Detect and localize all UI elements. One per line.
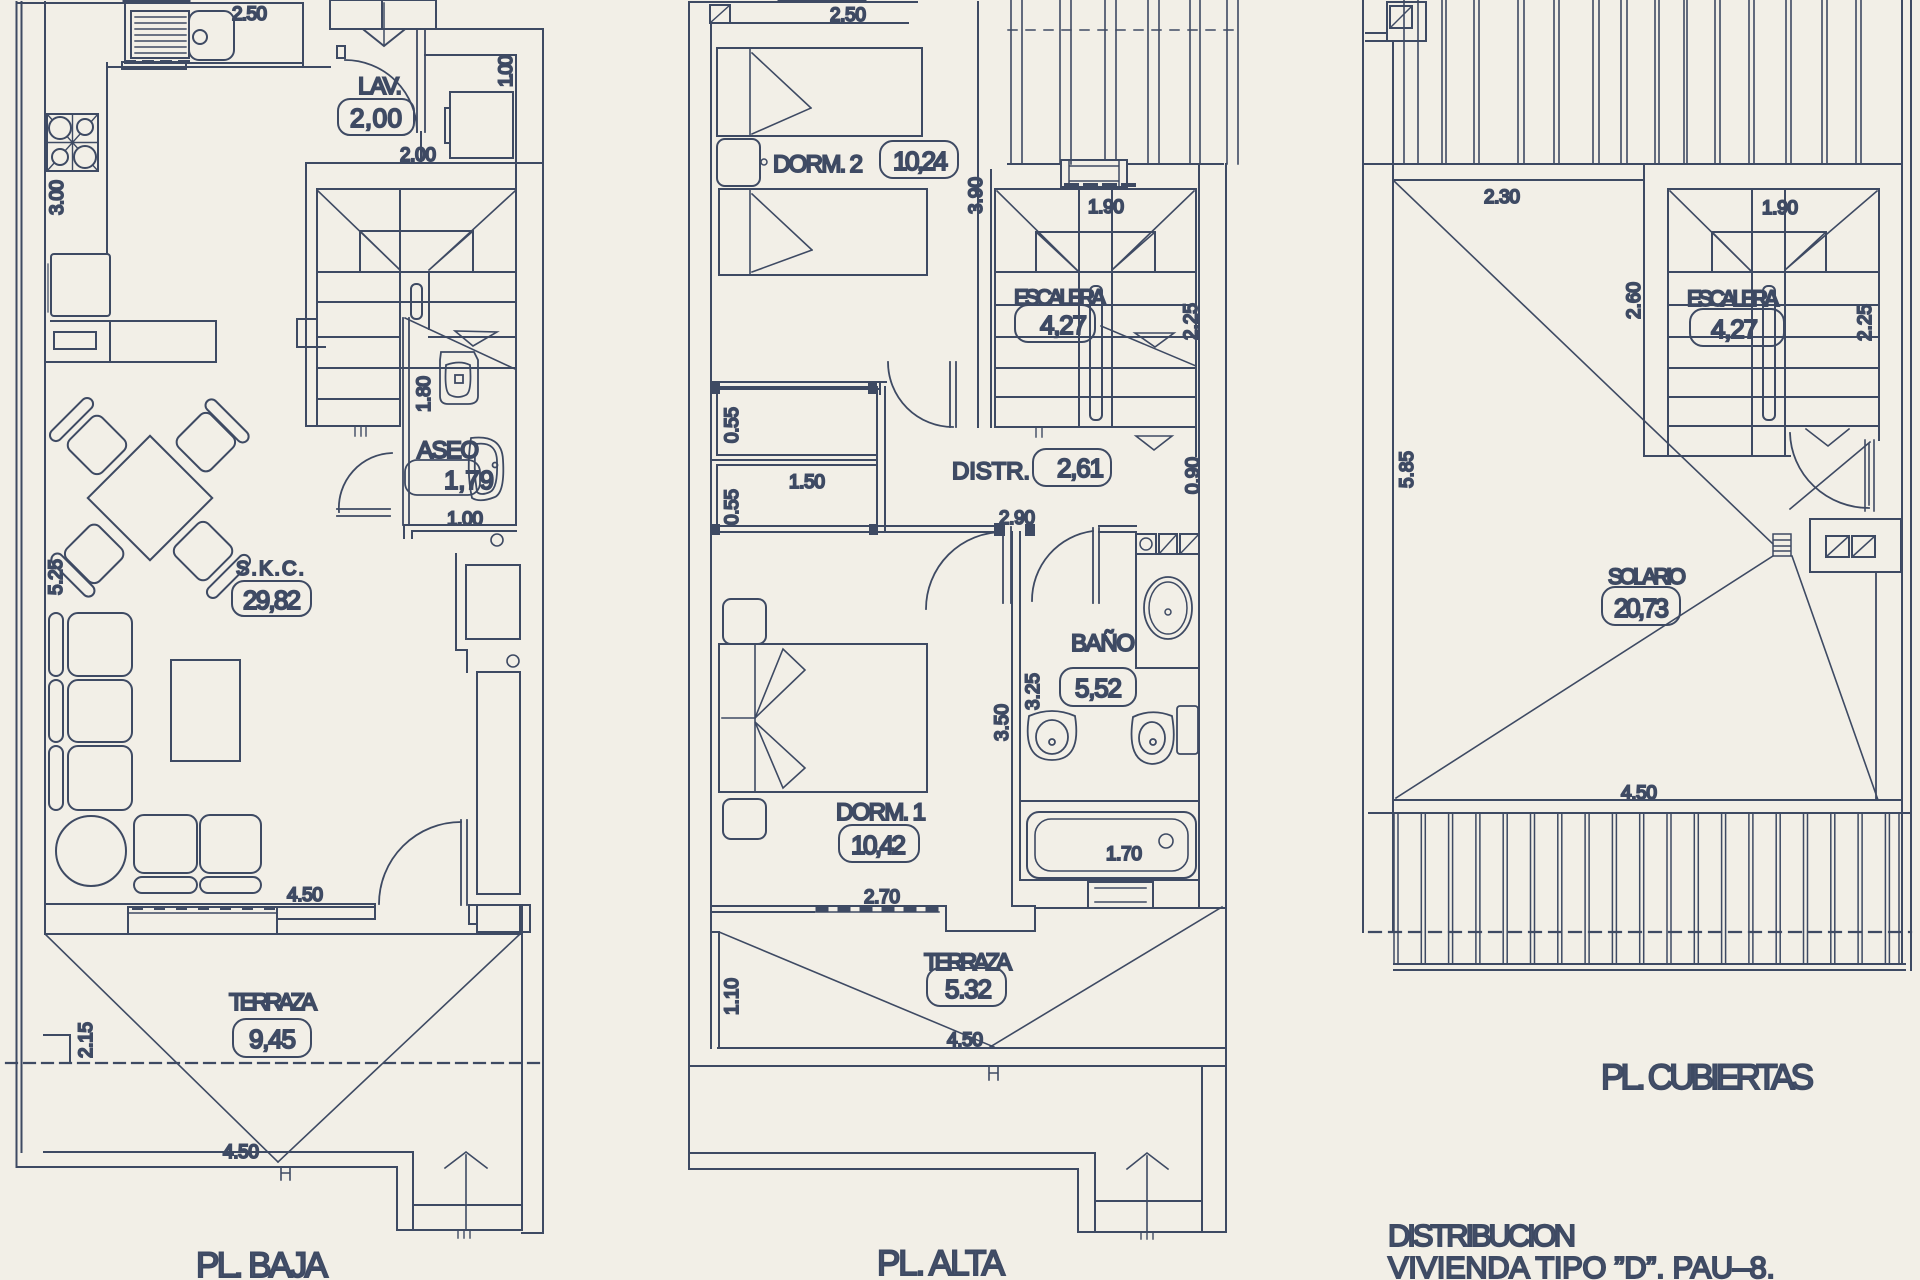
- svg-text:2.50: 2.50: [232, 4, 267, 25]
- svg-text:0.55: 0.55: [722, 407, 743, 443]
- svg-text:1.10: 1.10: [722, 978, 743, 1015]
- svg-text:1.50: 1.50: [789, 472, 825, 493]
- svg-text:4,27: 4,27: [1040, 310, 1087, 340]
- svg-text:20,73: 20,73: [1614, 593, 1669, 623]
- svg-text:TERRAZA: TERRAZA: [924, 949, 1012, 976]
- svg-text:PL. ALTA: PL. ALTA: [877, 1244, 1006, 1280]
- svg-text:2.50: 2.50: [830, 5, 866, 26]
- svg-text:0.90: 0.90: [1183, 457, 1204, 494]
- svg-text:1.00: 1.00: [496, 55, 517, 87]
- svg-text:S.K.C.: S.K.C.: [236, 558, 304, 580]
- svg-text:0.55: 0.55: [722, 489, 743, 525]
- svg-text:5.32: 5.32: [945, 974, 992, 1004]
- svg-text:1.90: 1.90: [1762, 198, 1798, 219]
- svg-text:2,61: 2,61: [1057, 453, 1104, 483]
- svg-text:1.90: 1.90: [1088, 197, 1124, 218]
- svg-text:3.50: 3.50: [992, 704, 1013, 741]
- svg-text:ESCALERA: ESCALERA: [1687, 286, 1779, 311]
- svg-text:2,00: 2,00: [350, 103, 402, 133]
- svg-text:2.30: 2.30: [1484, 187, 1520, 208]
- svg-text:DORM. 1: DORM. 1: [836, 799, 926, 826]
- svg-text:SOLARIO: SOLARIO: [1608, 564, 1686, 589]
- svg-text:1,79: 1,79: [444, 465, 494, 495]
- svg-text:4.50: 4.50: [287, 885, 323, 906]
- svg-text:2.25: 2.25: [1855, 304, 1876, 341]
- svg-text:9,45: 9,45: [249, 1024, 296, 1054]
- svg-text:5.25: 5.25: [46, 559, 67, 595]
- svg-text:3.25: 3.25: [1023, 673, 1044, 710]
- svg-text:5,52: 5,52: [1075, 673, 1122, 703]
- svg-text:1.00: 1.00: [447, 509, 483, 530]
- svg-text:DISTR.: DISTR.: [952, 458, 1030, 485]
- svg-text:VIVIENDA TIPO ”D”. PAU–8.: VIVIENDA TIPO ”D”. PAU–8.: [1388, 1250, 1775, 1280]
- svg-text:2.60: 2.60: [1624, 282, 1645, 319]
- svg-text:BAÑO: BAÑO: [1071, 630, 1135, 657]
- svg-text:4,27: 4,27: [1711, 314, 1758, 344]
- svg-text:10,42: 10,42: [851, 830, 906, 860]
- svg-text:LAV.: LAV.: [358, 73, 402, 100]
- svg-text:1.70: 1.70: [1106, 844, 1142, 865]
- svg-text:1.80: 1.80: [414, 376, 435, 412]
- svg-text:PL. CUBIERTAS: PL. CUBIERTAS: [1601, 1058, 1814, 1097]
- svg-text:3.90: 3.90: [966, 177, 987, 214]
- svg-text:2.70: 2.70: [864, 887, 900, 908]
- svg-text:ESCALERA: ESCALERA: [1014, 285, 1106, 310]
- svg-text:10,24: 10,24: [893, 146, 948, 176]
- svg-text:DISTRIBUCION: DISTRIBUCION: [1388, 1218, 1576, 1253]
- svg-text:5.85: 5.85: [1397, 451, 1418, 488]
- svg-text:DORM. 2: DORM. 2: [773, 151, 863, 178]
- svg-text:PL. BAJA: PL. BAJA: [196, 1246, 329, 1280]
- svg-text:2.15: 2.15: [76, 1022, 97, 1058]
- svg-text:29,82: 29,82: [243, 585, 301, 615]
- svg-text:3.00: 3.00: [47, 180, 68, 215]
- svg-text:TERRAZA: TERRAZA: [229, 989, 317, 1016]
